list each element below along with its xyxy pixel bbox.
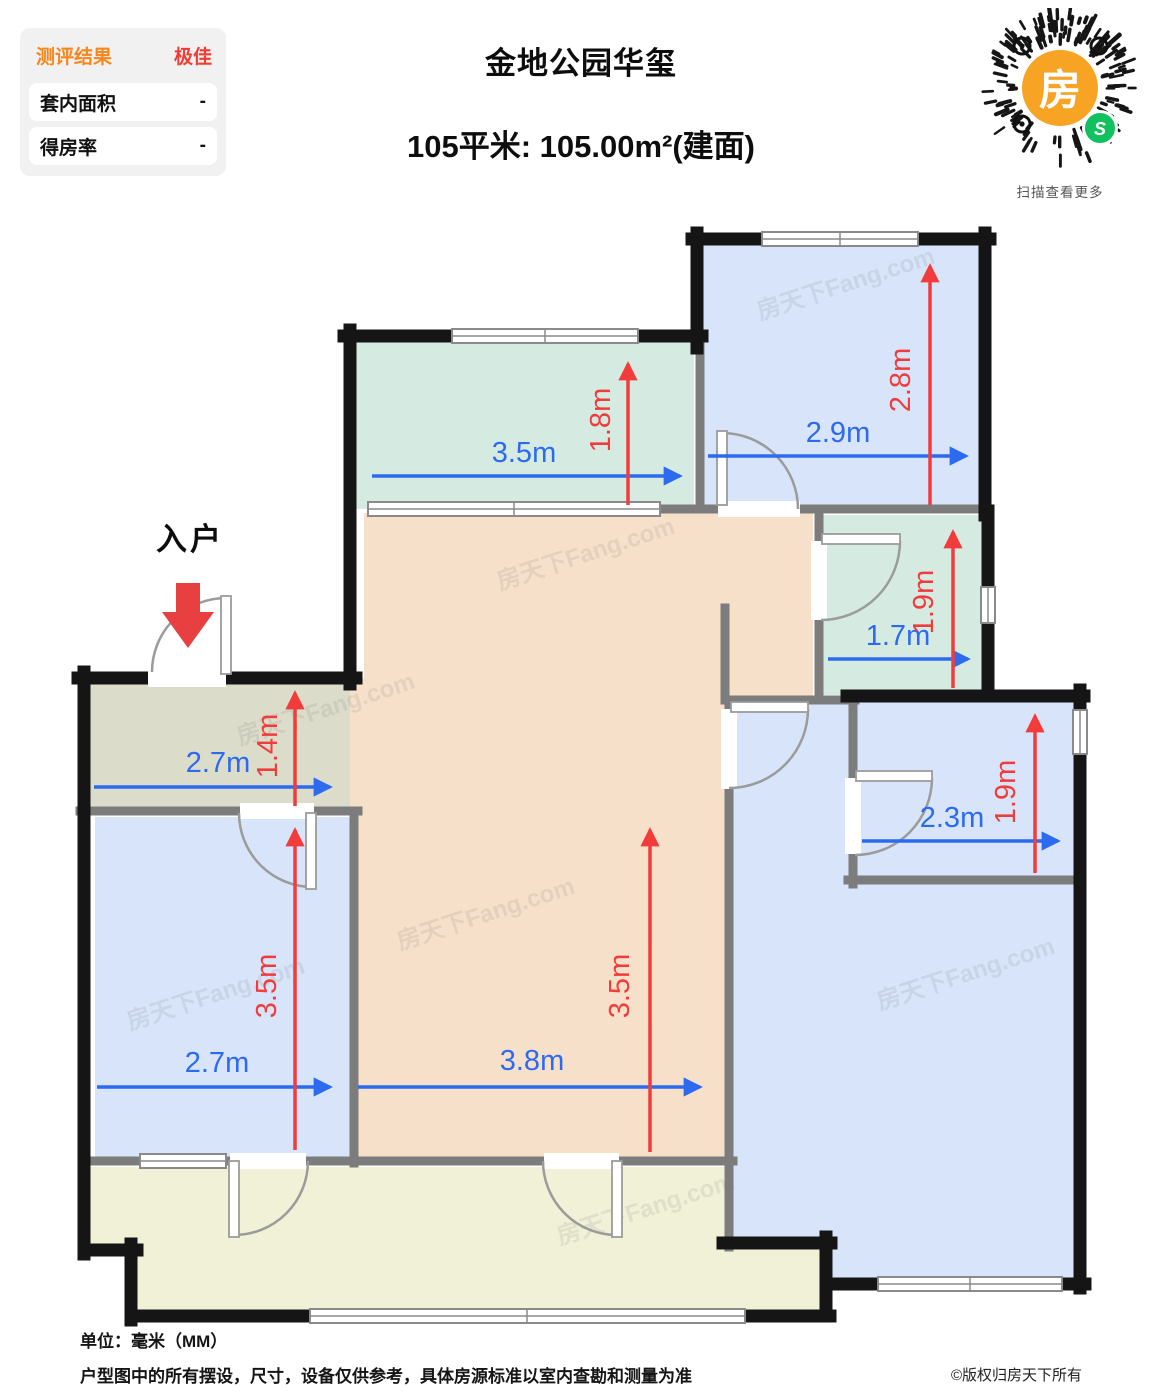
entrance-arrow-icon — [162, 583, 214, 648]
bedroom-se-door-leaf — [731, 702, 808, 712]
disclaimer-text: 户型图中的所有摆设，尺寸，设备仅供参考，具体房源标准以室内查勘和测量为准 — [80, 1362, 692, 1387]
dim-bathroom-height: 1.9m — [908, 570, 940, 634]
dim-bedroom-ne-width: 2.9m — [806, 417, 870, 449]
dim-bedroom-west-height: 3.5m — [251, 954, 283, 1018]
bedroom-ne-door-leaf — [717, 431, 727, 505]
floorplan-svg: 房天下Fang.com 房天下Fang.com 房天下Fang.com 房天下F… — [0, 0, 1162, 1400]
balcony-door-leaf-2 — [612, 1161, 622, 1237]
unit-note: 单位：毫米（MM） — [80, 1327, 227, 1352]
dim-utility-width: 2.3m — [920, 802, 984, 834]
floorplan-page: 测评结果 极佳 套内面积 - 得房率 - 金地公园华玺 105平米: 105.0… — [0, 0, 1162, 1400]
balcony-door-leaf-1 — [229, 1161, 239, 1237]
copyright-text: ©版权归房天下所有 — [951, 1364, 1082, 1385]
bathroom-door-leaf — [822, 534, 900, 544]
entry-door-leaf — [221, 596, 231, 674]
dim-hall-width: 2.7m — [186, 747, 250, 779]
bedroom-west-door-leaf — [306, 813, 316, 889]
utility-door-leaf — [856, 771, 932, 781]
dim-bedroom-ne-height: 2.8m — [885, 348, 917, 412]
dim-utility-height: 1.9m — [990, 760, 1022, 824]
dim-bedroom-west-width: 2.7m — [185, 1047, 249, 1079]
dim-living-height: 3.5m — [604, 954, 636, 1018]
room-north-balcony — [356, 342, 694, 509]
entrance-label: 入户 — [156, 522, 224, 557]
dim-living-width: 3.8m — [500, 1045, 564, 1077]
dim-hall-height: 1.4m — [252, 714, 284, 778]
dim-north-balcony-width: 3.5m — [492, 437, 556, 469]
dim-north-balcony-height: 1.8m — [585, 388, 617, 452]
